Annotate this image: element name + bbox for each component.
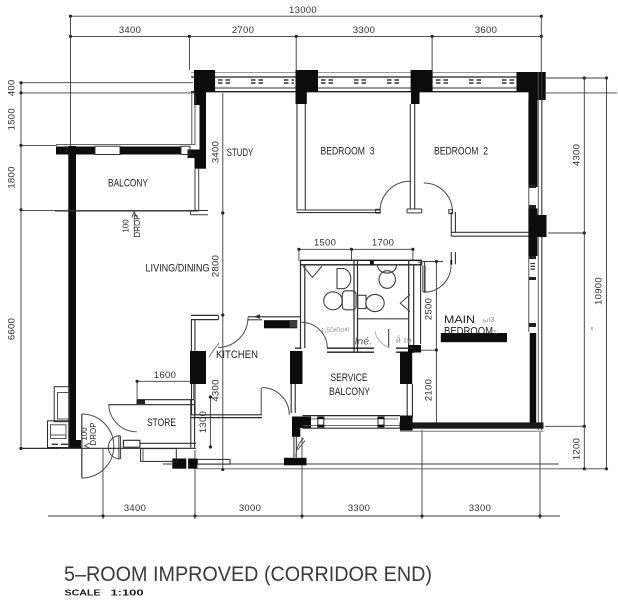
svg-text:1800: 1800 [7, 166, 18, 188]
svg-text:2800: 2800 [210, 255, 221, 277]
svg-text:MAIN: MAIN [444, 314, 475, 326]
svg-text:2500: 2500 [424, 298, 435, 320]
svg-text:STORE: STORE [147, 417, 176, 429]
svg-text:100: 100 [122, 219, 131, 233]
svg-text:4300: 4300 [572, 144, 583, 166]
svg-text:KITCHEN: KITCHEN [216, 349, 258, 361]
svg-text:3600: 3600 [475, 25, 497, 36]
svg-text:й́ ти: й́ ти [396, 334, 412, 345]
svg-text:2100: 2100 [424, 379, 435, 401]
svg-text:3400: 3400 [124, 503, 146, 514]
svg-text:400: 400 [7, 79, 18, 96]
svg-text:DROP: DROP [89, 422, 98, 445]
svg-text:BALCONY: BALCONY [108, 178, 149, 190]
svg-text:3300: 3300 [353, 25, 375, 36]
svg-text:10900: 10900 [594, 277, 605, 305]
svg-text:LIVING/DINING: LIVING/DINING [146, 263, 210, 275]
svg-text:3000: 3000 [239, 503, 261, 514]
svg-text:5–ROOM IMPROVED (CORRIDOR END): 5–ROOM IMPROVED (CORRIDOR END) [64, 562, 432, 586]
svg-text:3300: 3300 [469, 503, 491, 514]
svg-text:BEDROOM 3: BEDROOM 3 [321, 146, 375, 158]
svg-text:BEDROOM: BEDROOM [444, 326, 493, 338]
svg-text:BALCONY: BALCONY [329, 386, 371, 398]
svg-text:SERVICE: SERVICE [331, 372, 368, 384]
svg-text:1600: 1600 [154, 370, 176, 381]
svg-text:3400: 3400 [119, 25, 141, 36]
svg-text:2700: 2700 [232, 25, 254, 36]
svg-text:×т.: ×т. [489, 329, 498, 336]
svg-text:4300: 4300 [210, 379, 221, 401]
svg-text:1500: 1500 [7, 108, 18, 130]
svg-text:Inе́.: Inе́. [355, 336, 373, 348]
svg-text:6600: 6600 [7, 318, 18, 340]
svg-text:ьл3: ьл3 [483, 317, 495, 325]
svg-text:1200: 1200 [572, 438, 583, 460]
svg-text:100: 100 [80, 427, 89, 441]
svg-text:STUDY: STUDY [227, 147, 254, 159]
svg-text:1500: 1500 [314, 238, 336, 249]
svg-text:1300: 1300 [198, 411, 209, 433]
svg-text:DROP: DROP [133, 214, 142, 237]
svg-text:1700: 1700 [372, 238, 394, 249]
svg-text:3400: 3400 [210, 141, 221, 163]
svg-text:BEDROOM 2: BEDROOM 2 [434, 146, 488, 158]
svg-text:3300: 3300 [348, 503, 370, 514]
svg-text:13000: 13000 [289, 5, 317, 16]
